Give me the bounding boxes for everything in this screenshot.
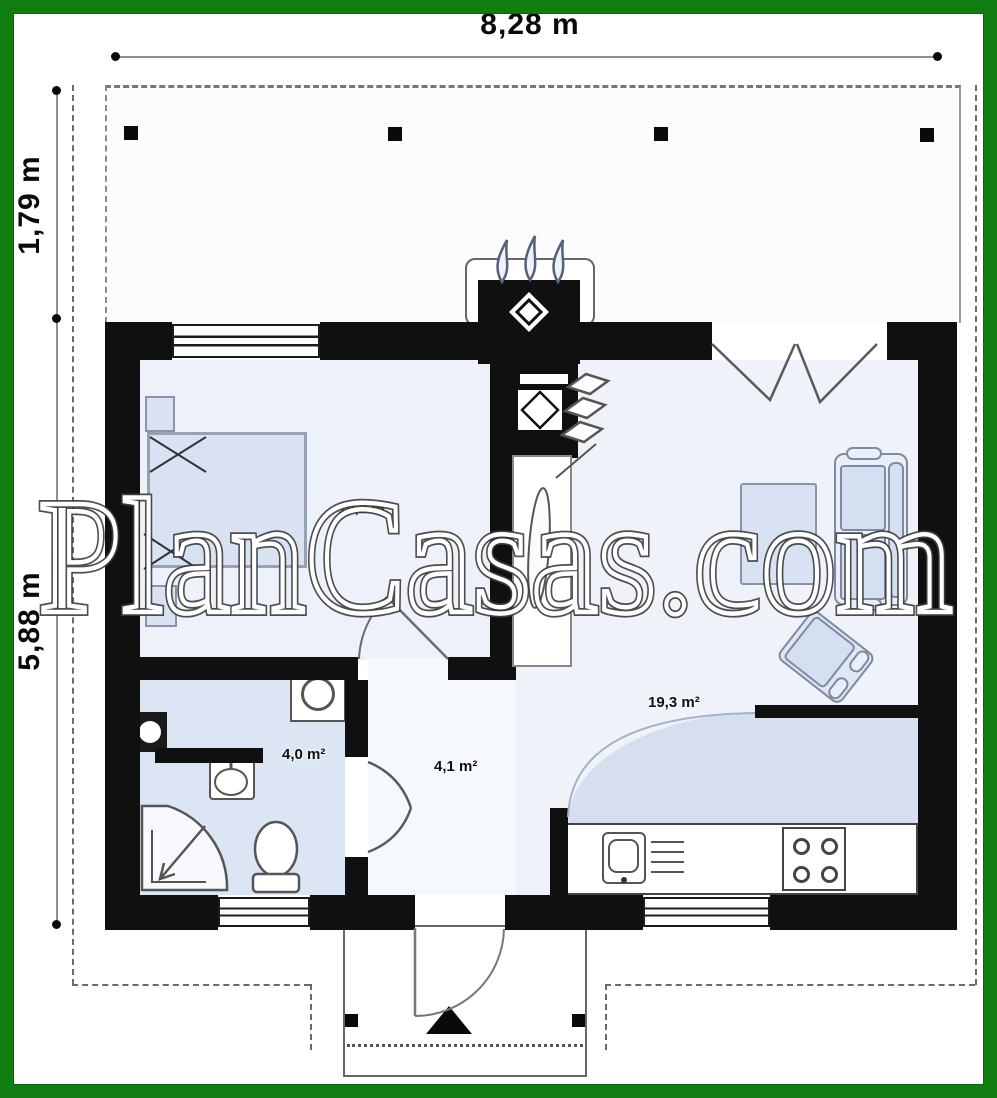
room-area-label-bedroom: 10,2 m²	[338, 500, 390, 517]
sofa-cushion	[840, 534, 886, 600]
room-area-label-living: 19,3 m²	[648, 694, 700, 711]
wall-kitchen-stub	[550, 808, 568, 895]
dimension-dot	[52, 314, 61, 323]
wall-bathroom-right	[345, 680, 368, 757]
stove	[782, 827, 846, 891]
dimension-dot	[111, 52, 120, 61]
flue-box	[518, 390, 562, 430]
floor-plan: 8,28 m 1,79 m 5,88 m	[0, 0, 997, 1098]
wall	[105, 360, 140, 930]
burner-icon	[821, 866, 838, 883]
dimension-dot	[933, 52, 942, 61]
porch-pillar	[572, 1014, 585, 1027]
wall-bathroom-right	[345, 857, 368, 895]
wall-living-stub	[755, 705, 918, 718]
overhang-outline-right	[975, 85, 977, 985]
burner-icon	[793, 866, 810, 883]
terrace-pillar-1	[124, 126, 138, 140]
chimney-vent-slot	[520, 374, 568, 384]
wall-bathroom-partition	[155, 748, 263, 763]
dimension-line-left	[56, 90, 58, 925]
sofa-backrest	[888, 462, 904, 598]
chimney-block	[478, 280, 580, 364]
porch-pillar	[345, 1014, 358, 1027]
wall-bedroom-bottom	[448, 657, 516, 680]
wall	[918, 360, 957, 930]
nightstand	[145, 396, 175, 432]
wall	[105, 322, 172, 360]
dimension-label-terrace-depth: 1,79 m	[13, 145, 47, 265]
dimension-label-width: 8,28 m	[440, 8, 620, 42]
burner-icon	[821, 838, 838, 855]
overhang-outline-bottom-left	[72, 984, 310, 986]
drainer-lines-icon	[651, 841, 684, 881]
kitchen-sink-basin	[608, 839, 639, 873]
overhang-outline-left	[72, 85, 74, 985]
sofa-armrest	[846, 598, 882, 611]
bed	[147, 432, 307, 568]
terrace-pillar-2	[388, 127, 402, 141]
overhang-outline-porch-left	[310, 984, 312, 1050]
porch-step-edge	[347, 1044, 583, 1047]
window-kitchen	[643, 897, 770, 927]
burner-icon	[793, 838, 810, 855]
dimension-dot	[52, 920, 61, 929]
hall-cabinet	[512, 455, 572, 667]
wall	[770, 895, 957, 930]
room-area-label-hall: 4,1 m²	[434, 758, 477, 775]
table	[740, 483, 817, 585]
wall	[310, 895, 415, 930]
boiler-dial-icon	[139, 721, 161, 743]
terrace-pillar-4	[920, 128, 934, 142]
overhang-outline-bottom-right	[605, 984, 975, 986]
dimension-dot	[52, 86, 61, 95]
dimension-line-top	[115, 56, 938, 58]
wall	[505, 895, 643, 930]
dimension-label-house-depth: 5,88 m	[13, 561, 47, 681]
nightstand	[145, 585, 177, 627]
room-area-label-bathroom: 4,0 m²	[282, 746, 325, 763]
entrance-arrow-icon	[426, 1006, 472, 1034]
wall	[887, 322, 957, 360]
sofa-armrest	[846, 447, 882, 460]
wall	[105, 895, 218, 930]
terrace-pillar-3	[654, 127, 668, 141]
wall-bedroom-bottom	[140, 657, 358, 680]
entrance-porch	[343, 925, 587, 1077]
sofa-cushion	[840, 465, 886, 531]
overhang-outline-porch-right	[605, 984, 607, 1050]
washing-machine-drum-icon	[301, 677, 335, 711]
window-bedroom	[172, 324, 320, 358]
window-bathroom	[218, 897, 310, 927]
kitchen-sink-drain-icon	[621, 877, 627, 883]
bathroom-sink	[209, 760, 255, 800]
